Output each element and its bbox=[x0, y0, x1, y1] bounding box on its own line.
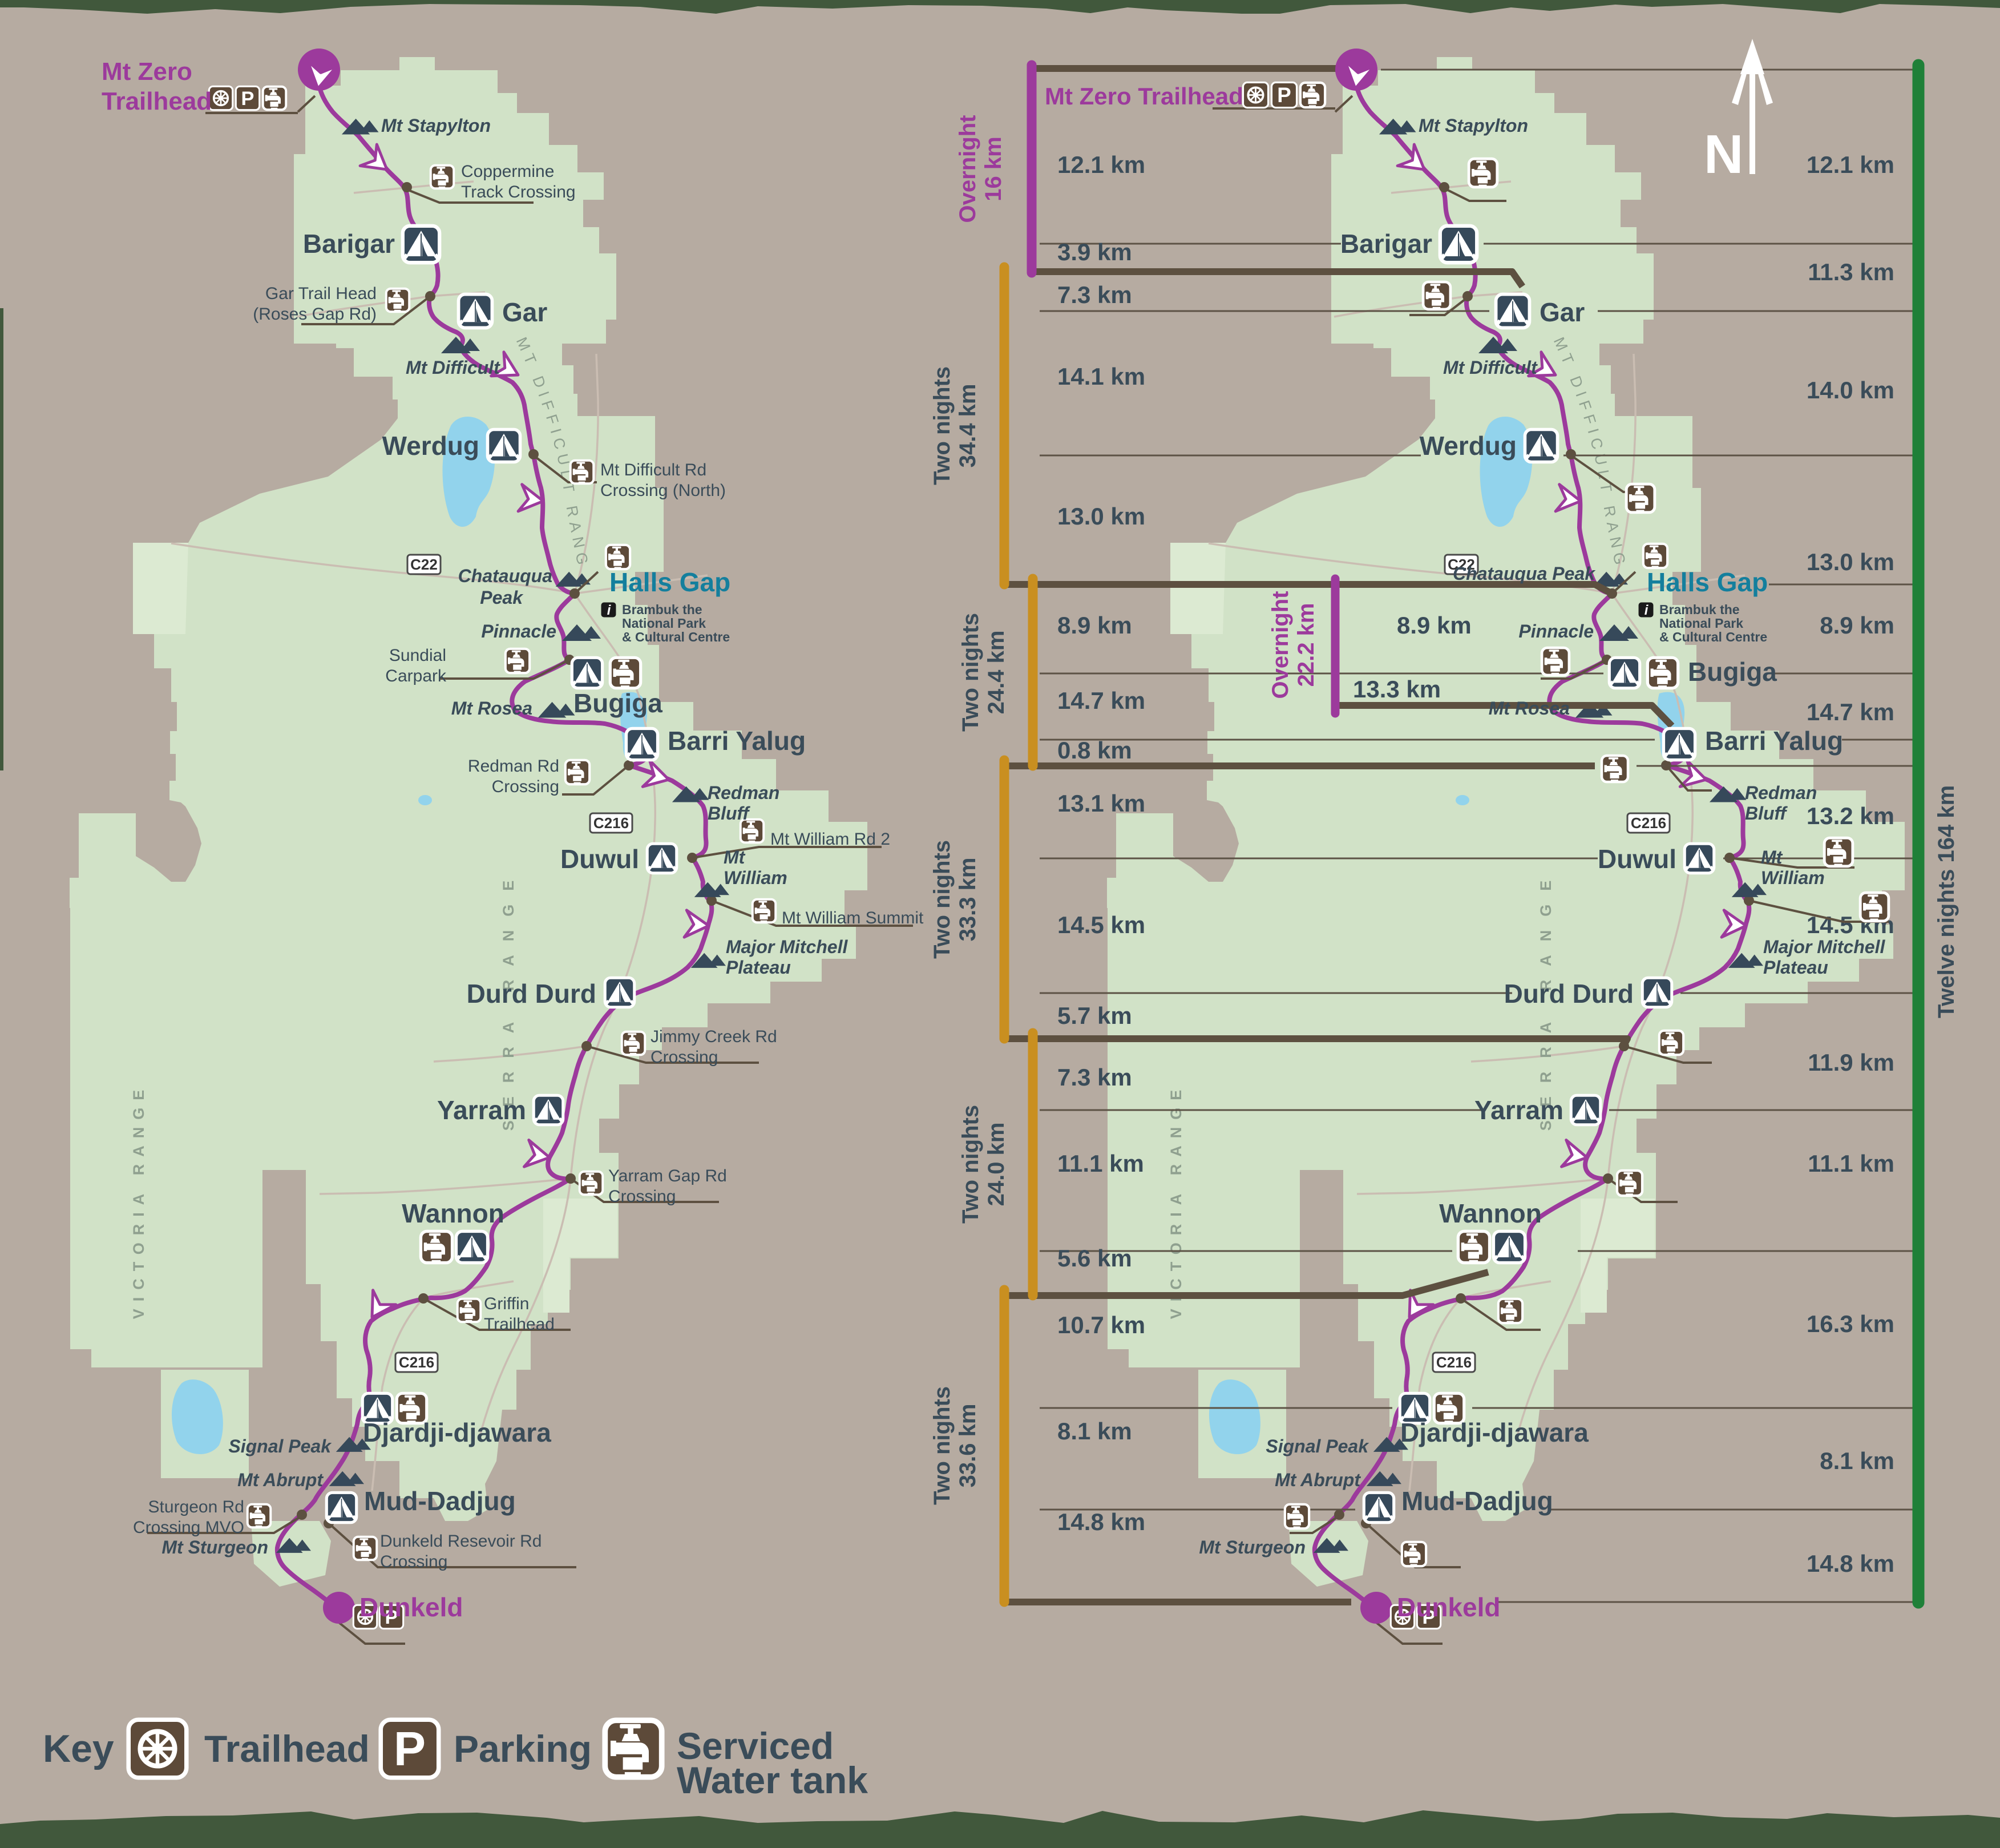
svg-text:Signal Peak: Signal Peak bbox=[228, 1436, 332, 1456]
svg-text:Mt Stapylton: Mt Stapylton bbox=[381, 115, 491, 136]
svg-text:National Park: National Park bbox=[1659, 616, 1743, 631]
svg-text:Crossing MVO: Crossing MVO bbox=[133, 1518, 244, 1537]
svg-text:Crossing (North): Crossing (North) bbox=[600, 481, 726, 500]
svg-text:Two nights: Two nights bbox=[930, 1386, 955, 1505]
svg-text:Halls Gap: Halls Gap bbox=[609, 567, 730, 597]
svg-text:8.9 km: 8.9 km bbox=[1057, 612, 1132, 639]
svg-text:13.2 km: 13.2 km bbox=[1807, 802, 1894, 829]
svg-text:C216: C216 bbox=[1436, 1354, 1472, 1371]
svg-text:C22: C22 bbox=[410, 556, 438, 573]
svg-text:11.3 km: 11.3 km bbox=[1808, 259, 1894, 285]
svg-text:Twelve nights 164 km: Twelve nights 164 km bbox=[1934, 785, 1959, 1018]
svg-text:Mt Sturgeon: Mt Sturgeon bbox=[161, 1537, 268, 1558]
svg-text:National Park: National Park bbox=[622, 616, 706, 631]
svg-text:Trailhead: Trailhead bbox=[204, 1728, 370, 1770]
svg-text:Bluff: Bluff bbox=[708, 803, 751, 824]
svg-text:24.0 km: 24.0 km bbox=[984, 1123, 1009, 1207]
svg-text:Gar: Gar bbox=[1540, 297, 1585, 327]
svg-text:C216: C216 bbox=[1631, 814, 1666, 832]
svg-text:8.9 km: 8.9 km bbox=[1397, 612, 1472, 639]
svg-text:33.6 km: 33.6 km bbox=[955, 1404, 980, 1488]
svg-text:Durd Durd: Durd Durd bbox=[467, 979, 596, 1008]
svg-text:Duwul: Duwul bbox=[1598, 844, 1676, 874]
svg-text:Barigar: Barigar bbox=[1340, 229, 1432, 259]
svg-text:7.3 km: 7.3 km bbox=[1057, 281, 1132, 308]
svg-text:12.1 km: 12.1 km bbox=[1057, 151, 1145, 178]
svg-text:Mt William Summit: Mt William Summit bbox=[782, 909, 924, 927]
svg-text:William: William bbox=[724, 867, 787, 888]
svg-text:Jimmy Creek Rd: Jimmy Creek Rd bbox=[650, 1027, 777, 1046]
svg-text:Yarram: Yarram bbox=[1474, 1095, 1563, 1125]
svg-text:Bugiga: Bugiga bbox=[1688, 657, 1777, 687]
svg-text:Mt Stapylton: Mt Stapylton bbox=[1419, 115, 1528, 136]
svg-text:Crossing: Crossing bbox=[380, 1552, 447, 1571]
svg-text:Redman Rd: Redman Rd bbox=[468, 757, 559, 776]
svg-text:Redman: Redman bbox=[1745, 782, 1817, 803]
svg-text:Two nights: Two nights bbox=[958, 1105, 983, 1224]
svg-text:Parking: Parking bbox=[454, 1728, 592, 1770]
svg-text:Overnight: Overnight bbox=[955, 115, 980, 223]
svg-text:Two nights: Two nights bbox=[930, 366, 955, 485]
svg-text:Water tank: Water tank bbox=[677, 1759, 868, 1801]
svg-text:Mt Abrupt: Mt Abrupt bbox=[1275, 1470, 1361, 1490]
svg-text:Carpark: Carpark bbox=[385, 667, 447, 685]
svg-text:11.1 km: 11.1 km bbox=[1057, 1150, 1144, 1177]
svg-text:Trailhead: Trailhead bbox=[484, 1315, 555, 1334]
svg-text:Coppermine: Coppermine bbox=[461, 162, 554, 181]
svg-text:Pinnacle: Pinnacle bbox=[481, 621, 556, 641]
svg-text:Major Mitchell: Major Mitchell bbox=[1763, 937, 1885, 957]
svg-text:Two nights: Two nights bbox=[958, 613, 983, 732]
svg-text:14.7 km: 14.7 km bbox=[1057, 687, 1145, 714]
svg-text:Halls Gap: Halls Gap bbox=[1647, 567, 1768, 597]
svg-text:Barri Yalug: Barri Yalug bbox=[1705, 726, 1843, 756]
svg-text:Djardji-djawara: Djardji-djawara bbox=[1400, 1418, 1589, 1447]
svg-text:5.6 km: 5.6 km bbox=[1057, 1245, 1132, 1272]
svg-text:13.3 km: 13.3 km bbox=[1353, 676, 1441, 703]
svg-text:Chatauqua: Chatauqua bbox=[458, 566, 552, 586]
svg-text:12.1 km: 12.1 km bbox=[1807, 151, 1894, 178]
svg-text:Track Crossing: Track Crossing bbox=[461, 183, 576, 201]
svg-text:11.9 km: 11.9 km bbox=[1808, 1049, 1894, 1076]
svg-text:Key: Key bbox=[43, 1727, 114, 1770]
svg-text:Mt Rosea: Mt Rosea bbox=[1489, 698, 1570, 719]
svg-text:VICTORIA RANGE: VICTORIA RANGE bbox=[1167, 1083, 1185, 1320]
svg-text:Mt Zero Trailhead: Mt Zero Trailhead bbox=[1045, 83, 1243, 110]
svg-text:Crossing: Crossing bbox=[492, 777, 559, 796]
svg-text:Bluff: Bluff bbox=[1745, 803, 1788, 824]
svg-text:14.0 km: 14.0 km bbox=[1807, 377, 1894, 404]
svg-text:Barigar: Barigar bbox=[303, 229, 395, 259]
svg-text:Peak: Peak bbox=[480, 587, 524, 608]
svg-text:7.3 km: 7.3 km bbox=[1057, 1064, 1132, 1091]
svg-text:Chatauqua Peak: Chatauqua Peak bbox=[1453, 563, 1596, 584]
svg-text:Mt Difficult: Mt Difficult bbox=[1443, 357, 1538, 378]
svg-text:Plateau: Plateau bbox=[1763, 957, 1828, 978]
svg-text:8.1 km: 8.1 km bbox=[1057, 1418, 1132, 1444]
svg-text:Mt Zero: Mt Zero bbox=[102, 58, 192, 86]
svg-text:Brambuk the: Brambuk the bbox=[622, 602, 702, 617]
svg-text:Mt: Mt bbox=[724, 847, 746, 867]
svg-text:16 km: 16 km bbox=[981, 136, 1006, 201]
svg-text:16.3 km: 16.3 km bbox=[1807, 1310, 1894, 1337]
svg-text:11.1 km: 11.1 km bbox=[1808, 1150, 1894, 1177]
svg-text:Sundial: Sundial bbox=[389, 646, 446, 665]
svg-text:34.4 km: 34.4 km bbox=[955, 384, 980, 468]
svg-text:Overnight: Overnight bbox=[1268, 591, 1293, 699]
svg-text:Plateau: Plateau bbox=[726, 957, 791, 978]
svg-text:Brambuk the: Brambuk the bbox=[1659, 602, 1740, 617]
svg-text:Griffin: Griffin bbox=[484, 1294, 529, 1313]
svg-text:14.8 km: 14.8 km bbox=[1807, 1550, 1894, 1577]
svg-text:& Cultural Centre: & Cultural Centre bbox=[622, 630, 730, 644]
svg-text:Bugiga: Bugiga bbox=[573, 688, 662, 718]
svg-text:Sturgeon Rd: Sturgeon Rd bbox=[148, 1498, 244, 1516]
svg-text:Two nights: Two nights bbox=[930, 840, 955, 959]
svg-text:Dunkeld: Dunkeld bbox=[359, 1592, 463, 1622]
svg-text:C216: C216 bbox=[399, 1354, 434, 1371]
svg-text:13.0 km: 13.0 km bbox=[1807, 548, 1894, 575]
svg-text:Mud-Dadjug: Mud-Dadjug bbox=[364, 1486, 516, 1516]
svg-text:Mt Difficult: Mt Difficult bbox=[406, 357, 500, 378]
svg-text:22.2 km: 22.2 km bbox=[1294, 603, 1319, 687]
svg-text:0.8 km: 0.8 km bbox=[1057, 737, 1132, 764]
svg-text:Trailhead: Trailhead bbox=[102, 87, 212, 115]
svg-text:Mt Abrupt: Mt Abrupt bbox=[237, 1470, 324, 1490]
svg-text:33.3 km: 33.3 km bbox=[955, 858, 980, 942]
svg-text:Duwul: Duwul bbox=[560, 844, 639, 874]
svg-text:Mt Difficult Rd: Mt Difficult Rd bbox=[600, 461, 706, 479]
svg-text:William: William bbox=[1761, 867, 1825, 888]
svg-text:Wannon: Wannon bbox=[1439, 1199, 1542, 1228]
svg-text:14.1 km: 14.1 km bbox=[1057, 363, 1145, 390]
svg-text:Werdug: Werdug bbox=[382, 431, 479, 461]
svg-text:Signal Peak: Signal Peak bbox=[1266, 1436, 1369, 1456]
svg-text:13.0 km: 13.0 km bbox=[1057, 503, 1145, 530]
svg-text:24.4 km: 24.4 km bbox=[984, 631, 1009, 715]
svg-text:Yarram: Yarram bbox=[437, 1095, 526, 1125]
svg-text:Durd Durd: Durd Durd bbox=[1504, 979, 1634, 1008]
svg-text:VICTORIA RANGE: VICTORIA RANGE bbox=[130, 1083, 147, 1320]
svg-text:Mt Rosea: Mt Rosea bbox=[451, 698, 532, 719]
svg-text:Werdug: Werdug bbox=[1420, 431, 1517, 461]
svg-text:Dunkeld: Dunkeld bbox=[1397, 1592, 1500, 1622]
svg-text:Mt Sturgeon: Mt Sturgeon bbox=[1199, 1537, 1306, 1558]
svg-text:Wannon: Wannon bbox=[402, 1199, 504, 1228]
svg-text:10.7 km: 10.7 km bbox=[1057, 1312, 1145, 1338]
svg-text:5.7 km: 5.7 km bbox=[1057, 1002, 1132, 1029]
svg-text:14.8 km: 14.8 km bbox=[1057, 1508, 1145, 1535]
svg-text:14.5 km: 14.5 km bbox=[1057, 911, 1145, 938]
svg-text:Major Mitchell: Major Mitchell bbox=[726, 937, 848, 957]
svg-text:& Cultural Centre: & Cultural Centre bbox=[1659, 630, 1767, 644]
svg-text:8.1 km: 8.1 km bbox=[1820, 1447, 1894, 1474]
svg-text:N: N bbox=[1704, 124, 1743, 185]
svg-text:Mt William Rd 2: Mt William Rd 2 bbox=[770, 830, 890, 849]
svg-text:13.1 km: 13.1 km bbox=[1057, 790, 1145, 817]
svg-text:3.9 km: 3.9 km bbox=[1057, 239, 1132, 265]
svg-text:(Roses Gap Rd): (Roses Gap Rd) bbox=[253, 305, 377, 324]
svg-text:Barri Yalug: Barri Yalug bbox=[668, 726, 806, 756]
svg-text:Mud-Dadjug: Mud-Dadjug bbox=[1401, 1486, 1553, 1516]
svg-text:Gar: Gar bbox=[502, 297, 547, 327]
svg-text:Mt: Mt bbox=[1761, 847, 1783, 867]
svg-text:8.9 km: 8.9 km bbox=[1820, 612, 1894, 639]
svg-text:14.7 km: 14.7 km bbox=[1807, 699, 1894, 725]
svg-text:Crossing: Crossing bbox=[650, 1048, 718, 1067]
svg-text:Crossing: Crossing bbox=[608, 1187, 676, 1206]
svg-text:Gar Trail Head: Gar Trail Head bbox=[265, 284, 377, 303]
svg-text:C216: C216 bbox=[593, 814, 629, 832]
svg-text:Redman: Redman bbox=[708, 782, 779, 803]
svg-text:Pinnacle: Pinnacle bbox=[1518, 621, 1594, 641]
svg-text:Yarram Gap Rd: Yarram Gap Rd bbox=[608, 1167, 727, 1185]
svg-text:Djardji-djawara: Djardji-djawara bbox=[363, 1418, 551, 1447]
svg-text:Dunkeld Resevoir Rd: Dunkeld Resevoir Rd bbox=[380, 1532, 542, 1551]
